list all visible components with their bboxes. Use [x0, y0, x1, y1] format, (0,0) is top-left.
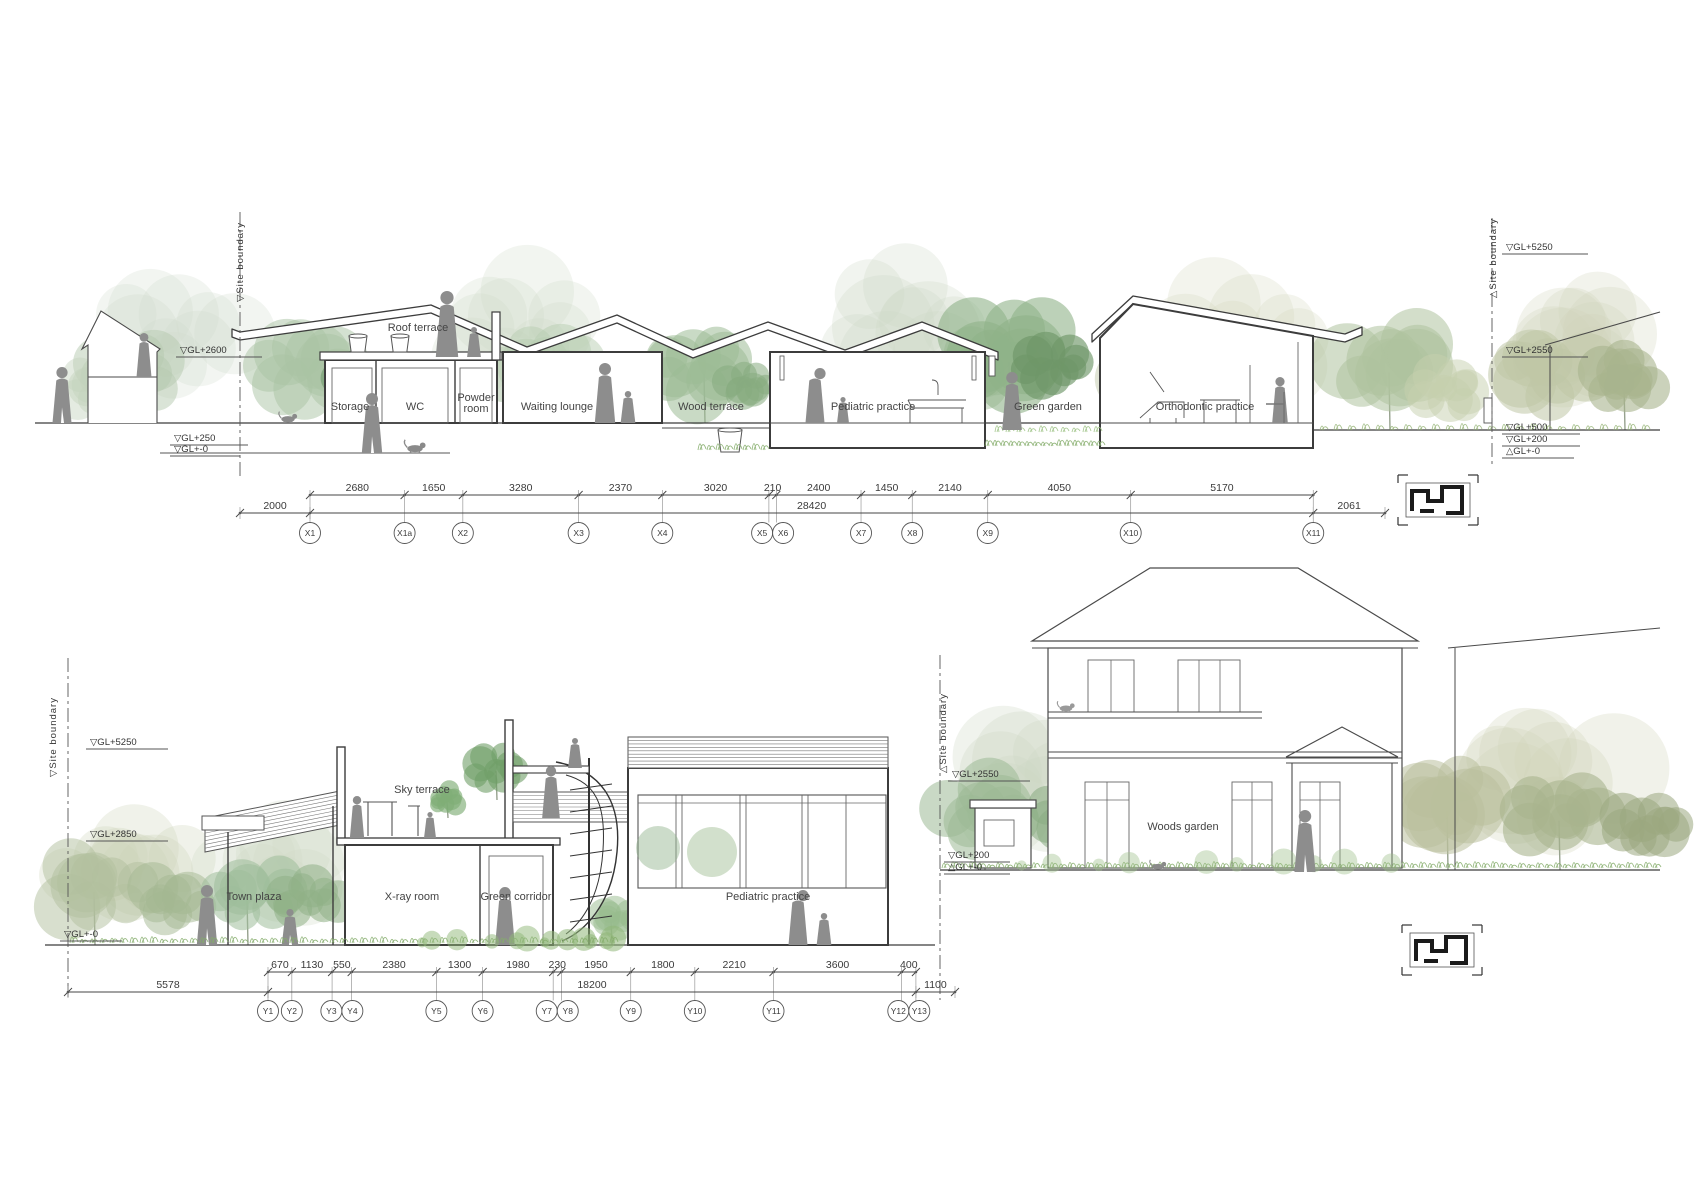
dimension-text: X11 [1306, 528, 1321, 538]
dimension-text: 1950 [584, 959, 608, 971]
dimension-text: 1450 [875, 482, 899, 494]
dimension-text: 2370 [609, 482, 633, 494]
level-label: ▽GL+2550 [1506, 345, 1553, 356]
dimension-text: Y4 [347, 1006, 358, 1016]
dimension-text: 4050 [1048, 482, 1072, 494]
level-label: ▽GL+5250 [1506, 242, 1553, 253]
elevation-drawing: 2680165032802370302021024001450214040505… [0, 0, 1698, 1200]
room-label-pediatric-practice-bottom: Pediatric practice [726, 891, 810, 903]
dimension-text: 230 [548, 959, 566, 971]
level-label: ▽GL+-0 [174, 444, 208, 455]
dimension-text: Y5 [431, 1006, 442, 1016]
dimension-text: 2061 [1337, 500, 1361, 512]
level-label: ▽GL+2600 [180, 345, 227, 356]
dimension-text: 1100 [924, 979, 947, 991]
architectural-sections-sheet: 2680165032802370302021024001450214040505… [0, 0, 1698, 1200]
dimension-text: 5170 [1210, 482, 1234, 494]
room-label-storage: Storage [331, 401, 370, 413]
dimension-text: 1650 [422, 482, 446, 494]
room-label-xray-room: X-ray room [385, 891, 439, 903]
dimension-text: X8 [907, 528, 918, 538]
dimension-text: 2380 [382, 959, 406, 971]
dimension-text: Y2 [287, 1006, 298, 1016]
room-label-green-garden: Green garden [1014, 401, 1082, 413]
dimension-text: 2140 [938, 482, 962, 494]
site-boundary-label-left: ▽Site boundary [48, 697, 59, 777]
dimension-text: Y9 [626, 1006, 637, 1016]
room-label-waiting-lounge: Waiting lounge [521, 401, 593, 413]
dimension-text: Y3 [326, 1006, 337, 1016]
dimension-text: 3600 [826, 959, 850, 971]
dimension-text: 18200 [577, 979, 606, 991]
level-label: ▽GL+5250 [90, 737, 137, 748]
room-label-green-corridor: Green corridor [481, 891, 552, 903]
dimension-text: X5 [757, 528, 768, 538]
dimension-text: X4 [657, 528, 668, 538]
dimension-text: Y8 [563, 1006, 574, 1016]
dimension-text: 400 [900, 959, 918, 971]
room-label-pediatric-practice: Pediatric practice [831, 401, 915, 413]
dimension-text: 3280 [509, 482, 533, 494]
dimension-text: 28420 [797, 500, 826, 512]
dimension-text: 2680 [346, 482, 370, 494]
room-label-roof-terrace: Roof terrace [388, 322, 449, 334]
level-label: ▽GL+2850 [90, 829, 137, 840]
room-label-woods-garden: Woods garden [1147, 821, 1218, 833]
dimension-text: X9 [983, 528, 994, 538]
room-label-town-plaza: Town plaza [226, 891, 282, 903]
dimension-text: X3 [573, 528, 584, 538]
level-label: ▽GL+250 [174, 433, 215, 444]
dimension-text: 1800 [651, 959, 675, 971]
level-label: △GL+-0 [948, 862, 982, 873]
dimension-text: 1980 [506, 959, 530, 971]
level-label: △GL+-0 [1506, 446, 1540, 457]
room-label-orthodontic-practice: Orthodontic practice [1156, 401, 1254, 413]
dimension-text: Y10 [687, 1006, 702, 1016]
site-boundary-label-left: ▽Site boundary [235, 222, 246, 302]
site-boundary-label-right: △Site boundary [1488, 218, 1499, 298]
site-boundary-label-right: △Site boundary [938, 693, 949, 773]
room-label-sky-terrace: Sky terrace [394, 784, 450, 796]
level-label: ▽GL+500 [1506, 422, 1547, 433]
dimension-text: Y6 [477, 1006, 488, 1016]
dimension-text: 2400 [807, 482, 831, 494]
dimension-text: X6 [778, 528, 789, 538]
dimension-text: 210 [764, 482, 782, 494]
dimension-text: X2 [458, 528, 469, 538]
room-label-wc: WC [406, 401, 424, 413]
key-plan-icons [1398, 475, 1482, 975]
dimension-text: X10 [1123, 528, 1138, 538]
dimension-text: X1a [397, 528, 412, 538]
dimension-text: X1 [305, 528, 316, 538]
dimension-text: 3020 [704, 482, 728, 494]
dimension-text: Y11 [766, 1006, 781, 1016]
level-label: ▽GL+200 [1506, 434, 1547, 445]
dimension-text: Y12 [891, 1006, 906, 1016]
level-label: ▽GL+200 [948, 850, 989, 861]
dimension-text: X7 [856, 528, 867, 538]
dimension-text: Y13 [912, 1006, 927, 1016]
level-label: ▽GL+-0 [64, 929, 98, 940]
dimension-text: 5578 [156, 979, 180, 991]
dimension-text: 1130 [301, 959, 324, 971]
dimension-text: 2210 [723, 959, 747, 971]
dimension-text: 2000 [263, 500, 287, 512]
dimension-text: 550 [333, 959, 351, 971]
dimension-text: Y7 [542, 1006, 553, 1016]
dimension-text: Y1 [263, 1006, 274, 1016]
dimension-text: 670 [271, 959, 289, 971]
dimension-text: 1300 [448, 959, 472, 971]
room-label-wood-terrace: Wood terrace [678, 401, 744, 413]
level-label: ▽GL+2550 [952, 769, 999, 780]
